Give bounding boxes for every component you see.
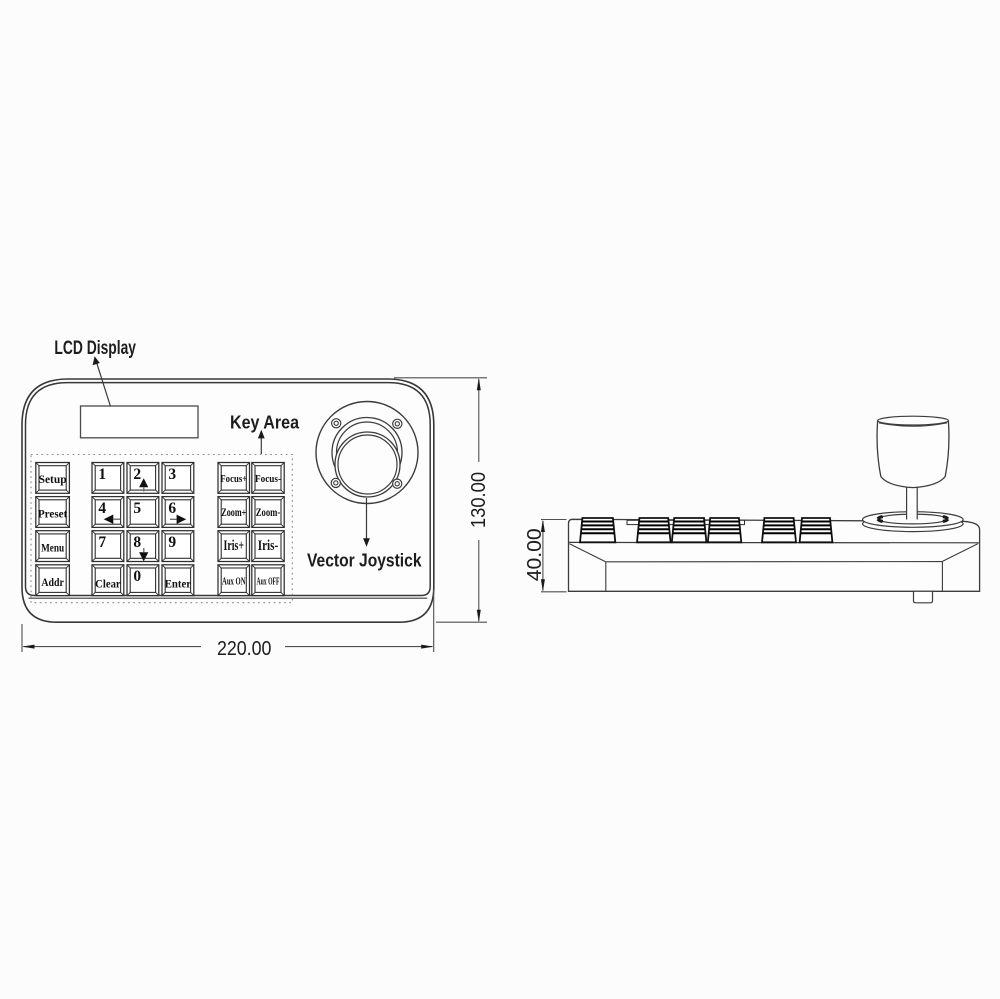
svg-text:4: 4 [98, 500, 106, 517]
svg-text:Iris+: Iris+ [224, 538, 245, 554]
svg-text:8: 8 [133, 534, 141, 551]
svg-text:Aux OFF: Aux OFF [257, 575, 280, 587]
svg-text:0: 0 [133, 568, 141, 585]
svg-text:7: 7 [98, 534, 106, 551]
svg-text:Addr: Addr [41, 575, 64, 589]
svg-text:5: 5 [133, 500, 141, 517]
svg-text:Setup: Setup [39, 472, 67, 486]
svg-text:130.00: 130.00 [468, 472, 490, 528]
svg-text:Preset: Preset [38, 506, 68, 520]
svg-text:Zoom+: Zoom+ [221, 505, 246, 519]
svg-text:LCD Display: LCD Display [54, 338, 136, 359]
svg-text:Enter: Enter [165, 576, 192, 590]
svg-text:Iris-: Iris- [258, 538, 279, 554]
svg-text:2: 2 [133, 466, 141, 483]
svg-text:9: 9 [168, 534, 176, 551]
svg-text:1: 1 [98, 466, 106, 483]
svg-text:Focus+: Focus+ [220, 473, 247, 485]
svg-text:6: 6 [168, 500, 176, 517]
svg-text:Aux ON: Aux ON [222, 575, 246, 587]
svg-text:Key Area: Key Area [230, 412, 300, 432]
svg-text:Menu: Menu [41, 540, 64, 554]
svg-text:3: 3 [168, 466, 176, 483]
svg-text:40.00: 40.00 [524, 528, 546, 581]
svg-text:220.00: 220.00 [217, 638, 272, 660]
svg-text:Zoom-: Zoom- [256, 505, 281, 519]
svg-text:Vector Joystick: Vector Joystick [307, 550, 422, 571]
svg-text:Focus-: Focus- [255, 473, 281, 485]
svg-text:Clear: Clear [95, 576, 121, 590]
